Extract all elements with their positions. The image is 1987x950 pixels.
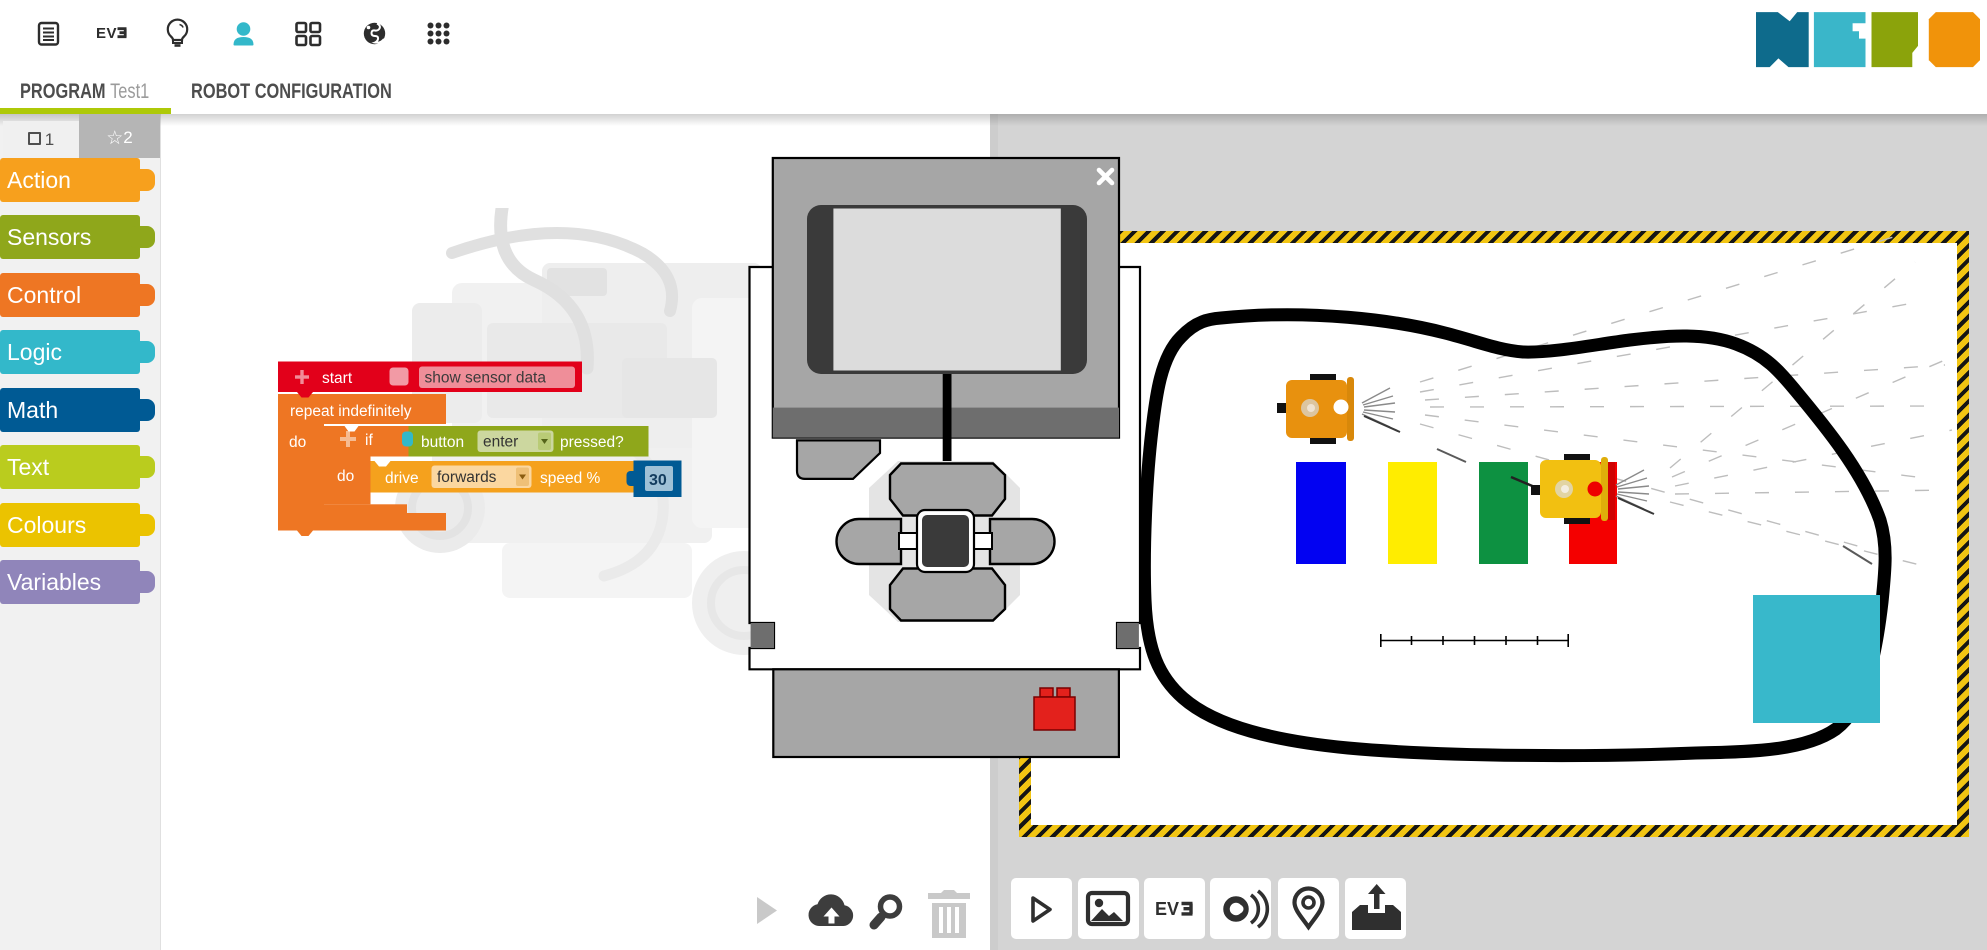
svg-text:drive: drive <box>385 470 419 487</box>
svg-text:pressed?: pressed? <box>560 434 624 451</box>
svg-text:EV: EV <box>96 25 117 42</box>
svg-text:repeat indefinitely: repeat indefinitely <box>290 403 412 420</box>
svg-text:button: button <box>421 434 464 451</box>
svg-text:speed %: speed % <box>540 470 601 487</box>
svg-text:do: do <box>289 434 306 451</box>
svg-text:30: 30 <box>649 472 667 489</box>
svg-text:forwards: forwards <box>437 469 497 486</box>
svg-text:do: do <box>337 468 354 485</box>
svg-text:show sensor data: show sensor data <box>425 370 547 387</box>
svg-text:if: if <box>365 432 373 449</box>
svg-text:EV: EV <box>1155 899 1179 919</box>
svg-text:enter: enter <box>483 434 518 451</box>
svg-text:start: start <box>322 370 353 387</box>
